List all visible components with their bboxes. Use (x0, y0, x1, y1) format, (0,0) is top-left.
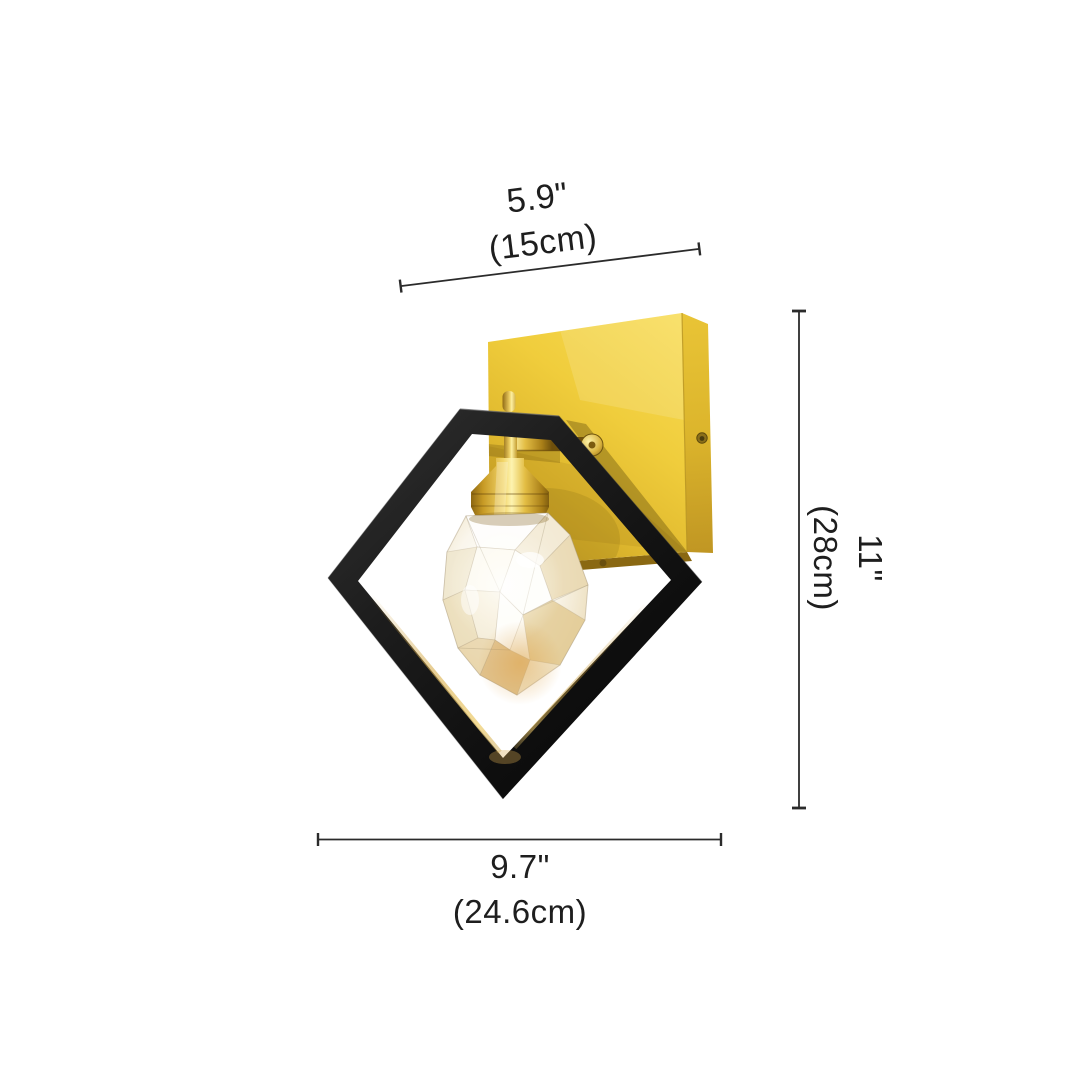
diagram-canvas: 5.9" (15cm) 11" (28cm) 9.7" (24.6cm) (0, 0, 1080, 1080)
crystal-shade (443, 512, 588, 705)
dimension-right-metric: (28cm) (807, 505, 844, 611)
dimension-top-inches: 5.9" (505, 175, 571, 220)
dimension-top-width: 5.9" (15cm) (390, 160, 701, 292)
mounting-screw (697, 433, 707, 443)
finial-pin (503, 391, 516, 412)
dimension-side-height: 11" (28cm) (792, 311, 889, 808)
dimension-bottom-inches: 9.7" (490, 848, 550, 885)
dimension-bottom-metric: (24.6cm) (453, 893, 587, 930)
dimension-top-metric: (15cm) (487, 217, 600, 268)
product-dimension-diagram: 5.9" (15cm) 11" (28cm) 9.7" (24.6cm) (0, 0, 1080, 1080)
plate-bottom-screw (600, 560, 607, 567)
wall-sconce-illustration (328, 313, 713, 799)
dimension-bottom-width: 9.7" (24.6cm) (318, 833, 721, 930)
dimension-right-inches: 11" (852, 534, 889, 581)
